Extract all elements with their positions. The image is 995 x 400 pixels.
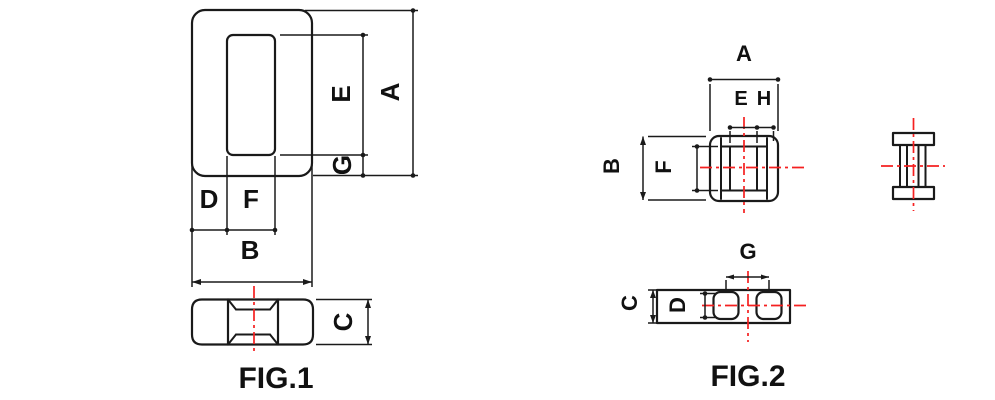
fig2-label-h: H bbox=[757, 88, 771, 110]
fig1-section-channel-walls bbox=[236, 310, 270, 335]
fig1-label-g: G bbox=[327, 155, 357, 175]
fig2-label-g: G bbox=[739, 239, 756, 264]
fig1-label-d: D bbox=[200, 184, 219, 214]
fig2-label-e: E bbox=[734, 88, 747, 110]
technical-drawing-sheet: A E G D F B C FIG.1 A bbox=[0, 0, 995, 400]
fig1-section-right-core-hatch bbox=[278, 300, 313, 345]
fig2-top-view: A E H B F bbox=[599, 41, 805, 213]
fig1-section-chamfers bbox=[228, 300, 278, 345]
fig1-label-f: F bbox=[243, 184, 259, 214]
fig1-dimensions: A E G D F B bbox=[190, 8, 418, 287]
fig1-inner-window-outline bbox=[227, 35, 275, 155]
fig2-label-c: C bbox=[617, 295, 642, 311]
fig2-label-b: B bbox=[599, 158, 624, 174]
fig2-ext-f bbox=[692, 147, 718, 191]
fig2-caption: FIG.2 bbox=[710, 360, 785, 393]
fig1-label-e: E bbox=[326, 85, 356, 102]
fig2-bottom-view: G C D bbox=[617, 239, 806, 342]
fig1-caption: FIG.1 bbox=[238, 362, 313, 395]
drawing-svg: A E G D F B C FIG.1 A bbox=[0, 0, 995, 400]
fig2-label-f: F bbox=[651, 160, 676, 173]
fig2-side-view bbox=[881, 118, 945, 211]
fig1-section-left-core-hatch bbox=[192, 300, 228, 345]
fig2-label-a: A bbox=[736, 41, 752, 66]
fig2-ext-c bbox=[648, 290, 662, 323]
fig1-label-a: A bbox=[375, 82, 405, 101]
fig1-label-c: C bbox=[328, 312, 358, 331]
fig1-label-b: B bbox=[241, 235, 260, 265]
fig1-section-outer-edges bbox=[228, 300, 278, 345]
fig2-label-d: D bbox=[665, 297, 690, 313]
fig1-section-view: C bbox=[192, 286, 372, 355]
